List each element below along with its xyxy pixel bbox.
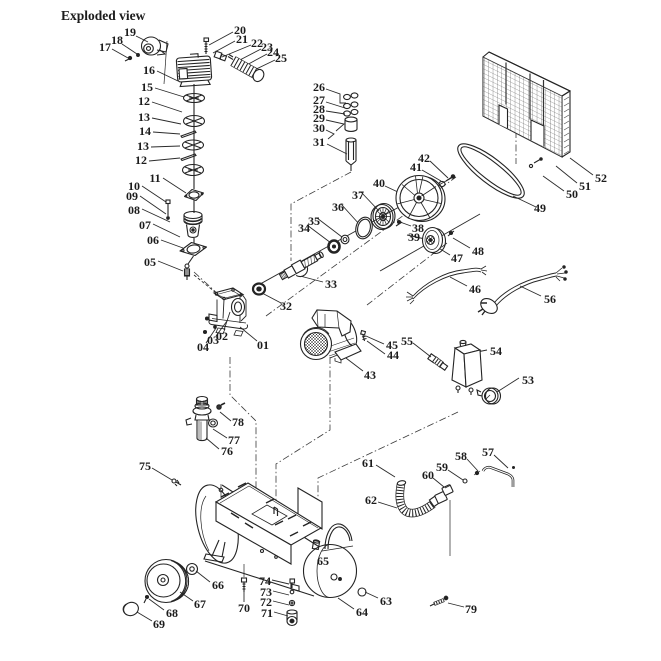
svg-text:10: 10 <box>128 179 140 193</box>
svg-text:08: 08 <box>128 203 140 217</box>
svg-text:52: 52 <box>595 171 607 185</box>
svg-text:12: 12 <box>138 94 150 108</box>
svg-text:31: 31 <box>313 135 325 149</box>
svg-text:50: 50 <box>566 187 578 201</box>
svg-text:74: 74 <box>259 574 271 588</box>
svg-text:61: 61 <box>362 456 374 470</box>
svg-text:65: 65 <box>317 554 329 568</box>
svg-text:60: 60 <box>422 468 434 482</box>
svg-text:05: 05 <box>144 255 156 269</box>
svg-text:17: 17 <box>99 40 111 54</box>
svg-text:19: 19 <box>124 25 136 39</box>
svg-text:54: 54 <box>490 344 502 358</box>
svg-text:37: 37 <box>352 188 364 202</box>
svg-text:70: 70 <box>238 601 250 615</box>
svg-text:30: 30 <box>313 121 325 135</box>
svg-text:57: 57 <box>482 445 494 459</box>
svg-text:13: 13 <box>138 110 150 124</box>
svg-text:78: 78 <box>232 415 244 429</box>
svg-text:51: 51 <box>579 179 591 193</box>
svg-text:59: 59 <box>436 460 448 474</box>
svg-text:26: 26 <box>313 80 325 94</box>
svg-text:13: 13 <box>137 139 149 153</box>
svg-text:Exploded view: Exploded view <box>61 8 146 23</box>
svg-text:55: 55 <box>401 334 413 348</box>
svg-text:64: 64 <box>356 605 368 619</box>
svg-text:01: 01 <box>257 338 269 352</box>
svg-text:21: 21 <box>236 32 248 46</box>
svg-text:67: 67 <box>194 597 206 611</box>
svg-text:14: 14 <box>139 124 151 138</box>
svg-text:47: 47 <box>451 251 463 265</box>
svg-text:46: 46 <box>469 282 481 296</box>
svg-text:77: 77 <box>228 433 240 447</box>
svg-text:49: 49 <box>534 201 546 215</box>
svg-text:79: 79 <box>465 602 477 616</box>
svg-text:42: 42 <box>418 151 430 165</box>
svg-text:32: 32 <box>280 299 292 313</box>
svg-text:48: 48 <box>472 244 484 258</box>
svg-text:15: 15 <box>141 80 153 94</box>
svg-text:35: 35 <box>308 214 320 228</box>
svg-text:45: 45 <box>386 338 398 352</box>
svg-text:16: 16 <box>143 63 155 77</box>
svg-text:36: 36 <box>332 200 344 214</box>
svg-text:75: 75 <box>139 459 151 473</box>
svg-text:69: 69 <box>153 617 165 631</box>
svg-text:12: 12 <box>135 153 147 167</box>
svg-text:11: 11 <box>149 171 160 185</box>
svg-text:06: 06 <box>147 233 159 247</box>
svg-text:43: 43 <box>364 368 376 382</box>
svg-text:58: 58 <box>455 449 467 463</box>
svg-text:40: 40 <box>373 176 385 190</box>
svg-text:56: 56 <box>544 292 556 306</box>
svg-text:25: 25 <box>275 51 287 65</box>
svg-text:33: 33 <box>325 277 337 291</box>
svg-text:68: 68 <box>166 606 178 620</box>
svg-text:07: 07 <box>139 218 151 232</box>
svg-text:18: 18 <box>111 33 123 47</box>
svg-text:63: 63 <box>380 594 392 608</box>
svg-text:39: 39 <box>408 230 420 244</box>
svg-text:04: 04 <box>197 340 209 354</box>
svg-text:62: 62 <box>365 493 377 507</box>
svg-text:53: 53 <box>522 373 534 387</box>
svg-text:66: 66 <box>212 578 224 592</box>
